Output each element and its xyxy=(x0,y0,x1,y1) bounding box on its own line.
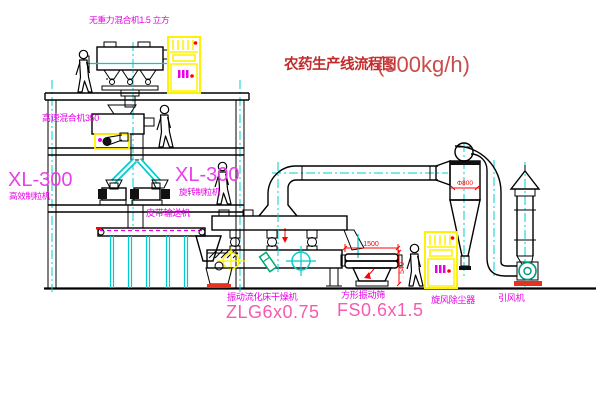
label-dryer-model: ZLG6x0.75 xyxy=(226,302,320,322)
cad-flow-diagram-page: 农药生产线流程图 (500kg/h) 无重力混合机1.5 立方 高速混合机350… xyxy=(0,0,600,403)
label-screen-name: 方形振动筛 xyxy=(341,289,385,300)
cad-drawing: 农药生产线流程图 (500kg/h) 无重力混合机1.5 立方 高速混合机350… xyxy=(0,0,600,403)
worker-top-floor xyxy=(76,50,92,92)
label-granulator-left-name: 高效制粒机 xyxy=(9,190,51,201)
vibration-motor xyxy=(260,252,277,271)
induced-draft-fan xyxy=(514,262,542,286)
dim-screen-height: 540 xyxy=(399,262,406,274)
dryer-feed-hopper xyxy=(196,228,288,261)
y-splitter-chute xyxy=(106,160,168,188)
label-dryer-name: 振动流化床干燥机 xyxy=(227,291,298,302)
label-top-mixer: 无重力混合机1.5 立方 xyxy=(89,14,170,25)
worker-ground xyxy=(407,244,423,286)
high-speed-mixer xyxy=(92,105,154,160)
label-granulator-left-model: XL-300 xyxy=(8,169,73,191)
drop-pipe xyxy=(128,205,143,228)
label-granulator-right-model: XL-300 xyxy=(175,164,240,186)
label-cyclone: 旋风除尘器 xyxy=(431,294,475,305)
dim-screen-length: 1500 xyxy=(363,241,379,248)
fluid-bed-dryer xyxy=(206,210,364,288)
label-granulator-right-name: 旋转制粒机 xyxy=(179,186,221,197)
mixer-discharge-funnels xyxy=(104,70,156,86)
vibrating-screen xyxy=(341,254,402,286)
label-high-speed-mixer: 高速混合机350 xyxy=(42,112,99,123)
control-cabinet-lower xyxy=(425,232,457,288)
dryer-bellows xyxy=(230,230,317,250)
worker-second-floor xyxy=(157,105,173,147)
dim-cyclone-diameter: Φ800 xyxy=(457,180,473,187)
label-belt-conveyor: 皮带输送机 xyxy=(146,207,190,218)
diagram-title-capacity: (500kg/h) xyxy=(377,52,470,77)
label-screen-model: FS0.6x1.5 xyxy=(337,300,424,320)
belt-conveyor xyxy=(96,227,205,288)
label-fan: 引风机 xyxy=(498,292,525,303)
control-cabinet-upper xyxy=(168,37,200,93)
mixer-drive-unit xyxy=(95,133,129,149)
